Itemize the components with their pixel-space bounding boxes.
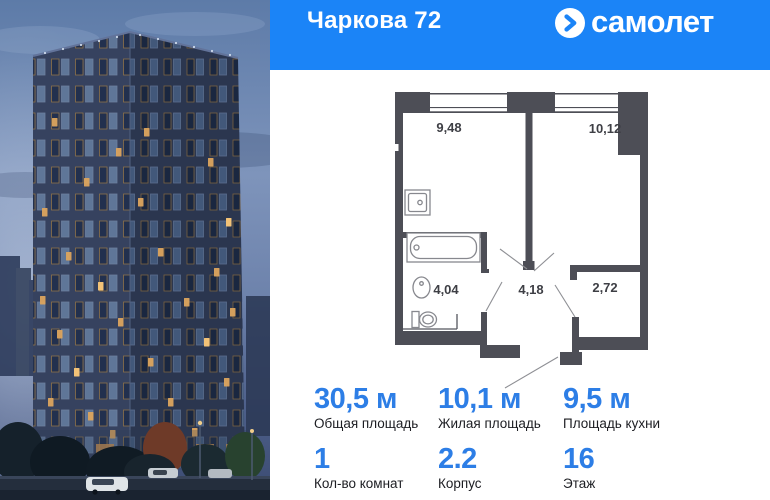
stat-label: Площадь кухни — [563, 417, 685, 431]
kitchen-sink-icon — [405, 190, 430, 215]
stat-building: 2.2 Корпус — [438, 445, 560, 491]
listing-card[interactable]: Чаркова 72 самолет — [0, 0, 770, 500]
washbasin-icon — [413, 277, 430, 298]
bathtub-icon — [407, 233, 480, 262]
stat-value: 16 — [563, 445, 685, 473]
room-area-bathroom: 4,04 — [433, 282, 459, 297]
project-title: Чаркова 72 — [307, 7, 441, 35]
stat-label: Жилая площадь — [438, 417, 560, 431]
building-photo — [0, 0, 270, 500]
stat-value: 10,1 м — [438, 385, 560, 413]
stat-value: 2.2 — [438, 445, 560, 473]
room-area-wardrobe: 2,72 — [592, 280, 617, 295]
samolet-logo-text: самолет — [591, 6, 714, 37]
stat-value: 30,5 м — [314, 385, 436, 413]
stat-kitchen-area: 9,5 м Площадь кухни — [563, 385, 685, 431]
stat-label: Общая площадь — [314, 417, 436, 431]
card-header: Чаркова 72 самолет — [270, 0, 770, 70]
stat-floor: 16 Этаж — [563, 445, 685, 491]
room-area-hallway: 4,18 — [518, 282, 543, 297]
stat-label: Корпус — [438, 477, 560, 491]
room-area-kitchen: 9,48 — [436, 120, 461, 135]
stat-value: 9,5 м — [563, 385, 685, 413]
stat-label: Этаж — [563, 477, 685, 491]
stat-value: 1 — [314, 445, 436, 473]
stat-total-area: 30,5 м Общая площадь — [314, 385, 436, 431]
floor-plan: 9,48 10,12 4,04 4,18 2,72 — [389, 86, 653, 392]
stat-living-area: 10,1 м Жилая площадь — [438, 385, 560, 431]
toilet-icon — [412, 312, 437, 328]
stat-rooms-count: 1 Кол-во комнат — [314, 445, 436, 491]
stat-label: Кол-во комнат — [314, 477, 436, 491]
samolet-logo-icon — [555, 8, 585, 38]
samolet-logo[interactable]: самолет — [555, 8, 714, 42]
room-area-bedroom: 10,12 — [589, 121, 622, 136]
